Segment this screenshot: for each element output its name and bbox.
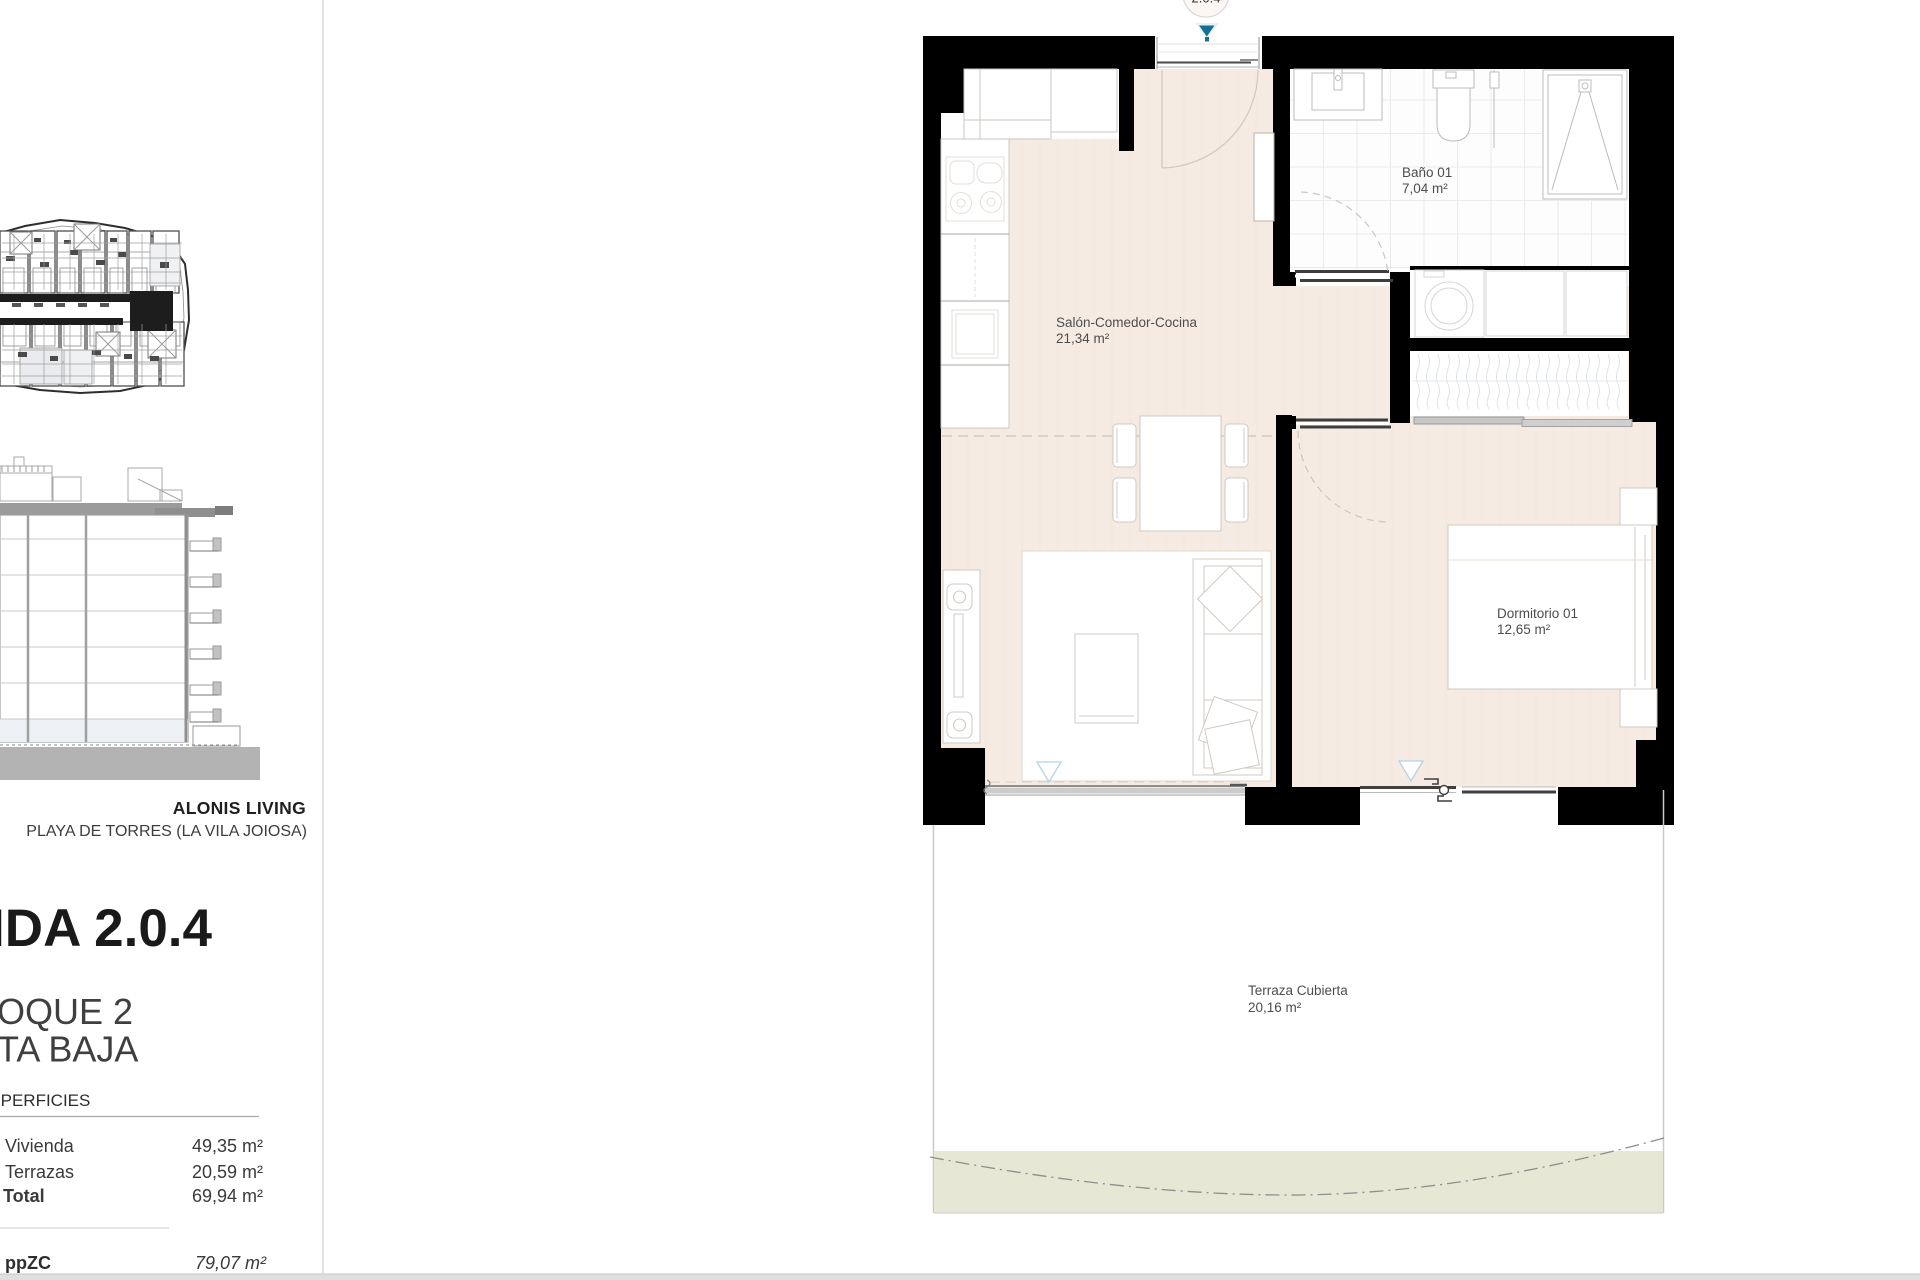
svg-text:Total: Total [3,1186,45,1206]
svg-text:VIVIENDA 2.0.4: VIVIENDA 2.0.4 [0,899,213,958]
svg-text:7,04 m²: 7,04 m² [1402,181,1448,196]
svg-text:12,65 m²: 12,65 m² [1497,622,1551,637]
svg-text:PLANTA BAJA: PLANTA BAJA [0,1029,138,1070]
svg-text:ppZC: ppZC [5,1253,51,1273]
svg-text:2.0.4: 2.0.4 [1192,0,1221,6]
svg-text:BLOQUE 2: BLOQUE 2 [0,991,133,1032]
svg-text:Baño 01: Baño 01 [1402,165,1452,180]
svg-text:69,94 m²: 69,94 m² [192,1186,263,1206]
svg-text:79,07 m²: 79,07 m² [195,1253,267,1273]
svg-text:20,16 m²: 20,16 m² [1248,1000,1302,1015]
svg-text:21,34 m²: 21,34 m² [1056,331,1110,346]
svg-text:Salón-Comedor-Cocina: Salón-Comedor-Cocina [1056,315,1198,330]
svg-text:Dormitorio 01: Dormitorio 01 [1497,606,1578,621]
svg-text:ALONIS LIVING: ALONIS LIVING [173,798,306,818]
svg-text:Terraza Cubierta: Terraza Cubierta [1248,983,1348,998]
svg-text:Vivienda: Vivienda [5,1136,75,1156]
svg-text:SUPERFICIES: SUPERFICIES [0,1091,90,1110]
svg-text:49,35 m²: 49,35 m² [192,1136,263,1156]
svg-text:Terrazas: Terrazas [5,1162,74,1182]
svg-text:20,59 m²: 20,59 m² [192,1162,263,1182]
svg-text:PLAYA DE TORRES (LA VILA JOIOS: PLAYA DE TORRES (LA VILA JOIOSA) [26,823,307,840]
